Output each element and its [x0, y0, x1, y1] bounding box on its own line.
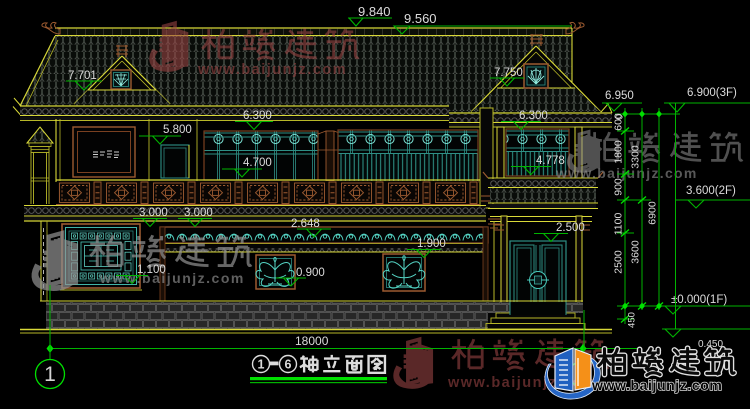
svg-text:9.840: 9.840 — [358, 4, 391, 19]
svg-text:3600: 3600 — [630, 240, 642, 264]
svg-text:600: 600 — [613, 113, 625, 131]
svg-text:2.648: 2.648 — [291, 218, 320, 230]
svg-text:7.750: 7.750 — [494, 67, 523, 79]
svg-text:6.900(3F): 6.900(3F) — [687, 87, 737, 99]
svg-text:3.000: 3.000 — [184, 207, 213, 219]
svg-text:±0.000(1F): ±0.000(1F) — [671, 294, 727, 306]
svg-text:4.700: 4.700 — [243, 157, 272, 169]
svg-text:9.560: 9.560 — [404, 11, 437, 26]
svg-text:www.baijunjz.com: www.baijunjz.com — [591, 377, 722, 393]
svg-text:4.778: 4.778 — [536, 155, 565, 167]
svg-text:www.baijunjz.com: www.baijunjz.com — [99, 270, 245, 286]
svg-text:2500: 2500 — [613, 250, 625, 274]
svg-text:2.500: 2.500 — [556, 222, 585, 234]
svg-text:3300: 3300 — [630, 145, 642, 169]
svg-text:18000: 18000 — [295, 334, 329, 348]
svg-text:7.701: 7.701 — [68, 70, 97, 82]
svg-text:3.000: 3.000 — [139, 207, 168, 219]
svg-text:1800: 1800 — [613, 140, 625, 164]
svg-text:0.900: 0.900 — [296, 267, 325, 279]
svg-text:1.900: 1.900 — [417, 238, 446, 250]
svg-text:5.800: 5.800 — [163, 124, 192, 136]
svg-text:6: 6 — [285, 358, 292, 372]
svg-text:1: 1 — [44, 363, 56, 386]
svg-text:1: 1 — [258, 358, 265, 372]
svg-text:www.baijunjz.com: www.baijunjz.com — [197, 62, 347, 78]
svg-text:6900: 6900 — [647, 201, 659, 225]
svg-text:1100: 1100 — [613, 213, 625, 236]
svg-text:900: 900 — [613, 178, 625, 196]
svg-text:3.600(2F): 3.600(2F) — [686, 185, 736, 197]
svg-text:450: 450 — [627, 312, 638, 328]
svg-text:6.300: 6.300 — [243, 110, 272, 122]
svg-text:1.100: 1.100 — [137, 264, 166, 276]
svg-text:6.950: 6.950 — [605, 90, 634, 102]
svg-text:6.300: 6.300 — [519, 110, 548, 122]
